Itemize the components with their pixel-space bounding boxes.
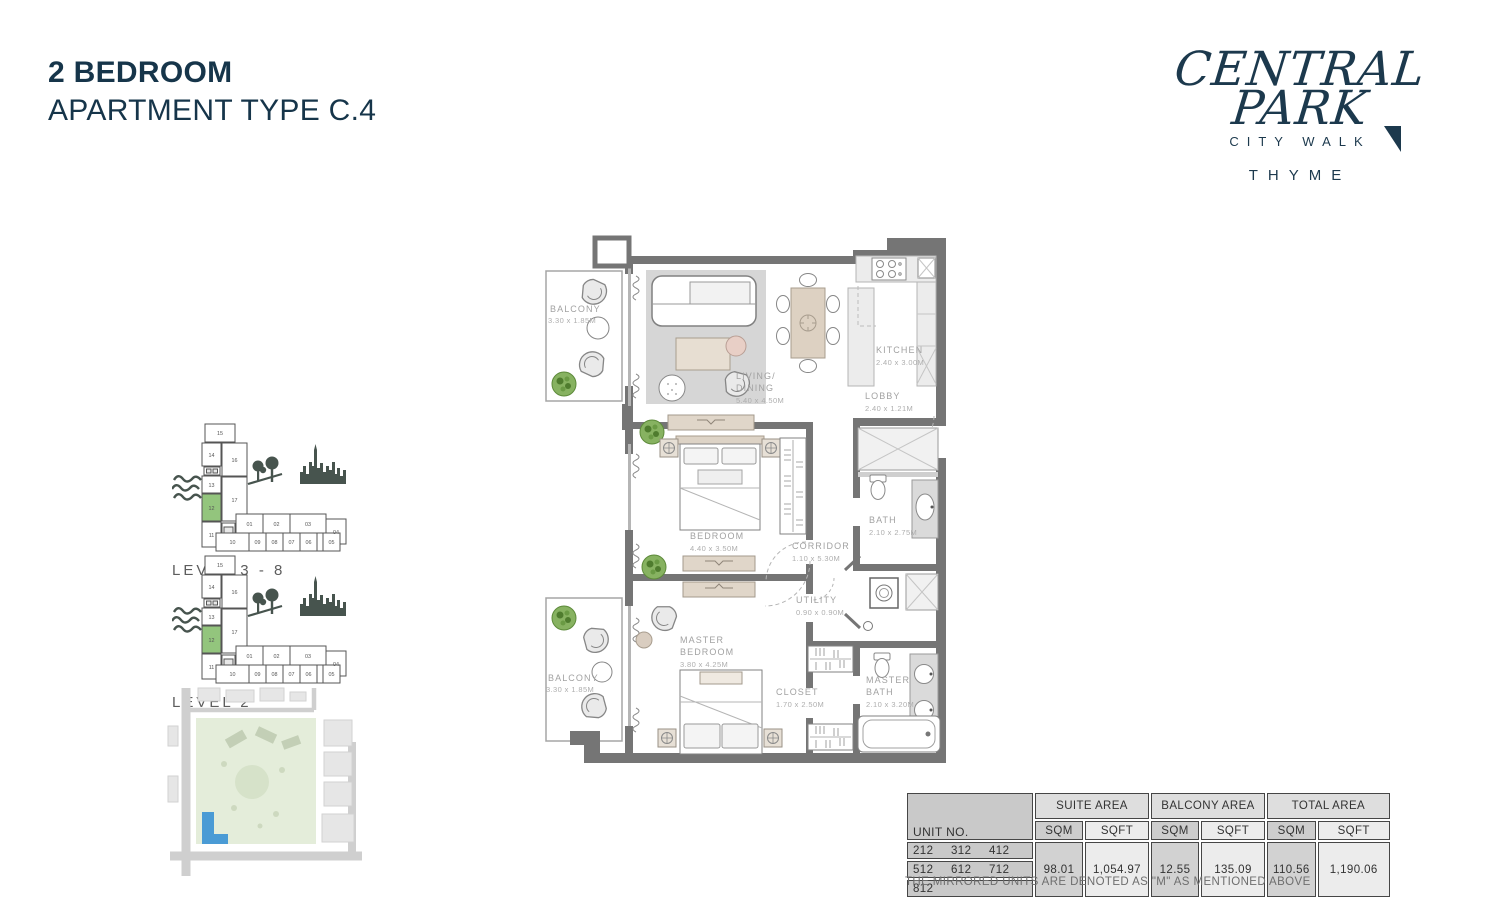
skyline-icon bbox=[300, 576, 346, 616]
svg-text:04: 04 bbox=[333, 530, 339, 536]
counter bbox=[917, 282, 936, 386]
floor-plan: BALCONY 3.30 x 1.85M LIVING/ DINING 5.40… bbox=[540, 226, 956, 789]
headboard bbox=[676, 436, 764, 444]
sqm-header: SQM bbox=[1035, 821, 1083, 840]
sqm-header: SQM bbox=[1151, 821, 1199, 840]
svg-text:05: 05 bbox=[329, 672, 335, 678]
balcony-area-header: BALCONY AREA bbox=[1151, 793, 1265, 819]
svg-text:CLOSET: CLOSET bbox=[776, 687, 819, 697]
pouf-icon bbox=[659, 375, 685, 401]
svg-text:03: 03 bbox=[305, 522, 311, 528]
svg-text:14: 14 bbox=[209, 453, 215, 459]
svg-text:MASTER: MASTER bbox=[680, 635, 724, 645]
waves-icon bbox=[172, 608, 201, 631]
brand-logo: CENTRAL PARK CITY WALK THYME bbox=[1166, 48, 1434, 184]
svg-text:BALCONY: BALCONY bbox=[548, 673, 599, 683]
trees-icon bbox=[248, 457, 282, 485]
page: 2 BEDROOM APARTMENT TYPE C.4 CENTRAL PAR… bbox=[0, 0, 1500, 900]
logo-citywalk: CITY WALK bbox=[1229, 134, 1370, 149]
svg-text:BALCONY: BALCONY bbox=[550, 304, 601, 314]
svg-text:3.30 x 1.85M: 3.30 x 1.85M bbox=[548, 316, 596, 325]
svg-text:DINING: DINING bbox=[736, 383, 774, 393]
site-map bbox=[164, 686, 370, 887]
sqft-header: SQFT bbox=[1085, 821, 1149, 840]
washer-icon bbox=[870, 578, 898, 608]
title-bedrooms: 2 BEDROOM bbox=[48, 54, 376, 92]
skyline-icon bbox=[300, 444, 346, 484]
svg-text:0.90 x 0.90M: 0.90 x 0.90M bbox=[796, 608, 844, 617]
nightstand-icon bbox=[660, 439, 678, 457]
curtain-icons bbox=[633, 276, 639, 732]
svg-text:KITCHEN: KITCHEN bbox=[876, 345, 923, 355]
svg-text:07: 07 bbox=[289, 672, 295, 678]
wall-light-icon bbox=[764, 729, 782, 747]
svg-text:LIVING/: LIVING/ bbox=[736, 371, 776, 381]
suite-sqm-value: 98.01 bbox=[1035, 842, 1083, 897]
svg-text:2.40 x 1.21M: 2.40 x 1.21M bbox=[865, 404, 913, 413]
svg-text:14: 14 bbox=[209, 585, 215, 591]
svg-text:01: 01 bbox=[247, 654, 253, 660]
dresser-icon bbox=[668, 415, 754, 430]
svg-text:06: 06 bbox=[306, 672, 312, 678]
svg-text:1.10 x 5.30M: 1.10 x 5.30M bbox=[792, 554, 840, 563]
svg-text:11: 11 bbox=[209, 665, 215, 671]
sqm-header: SQM bbox=[1267, 821, 1316, 840]
svg-text:12: 12 bbox=[209, 506, 215, 512]
svg-text:07: 07 bbox=[289, 540, 295, 546]
svg-text:15: 15 bbox=[217, 563, 223, 569]
balcony-top bbox=[546, 271, 622, 401]
total-sqft-value: 1,190.06 bbox=[1318, 842, 1390, 897]
armchair-icon bbox=[647, 600, 682, 636]
nightstand-icon bbox=[762, 439, 780, 457]
svg-text:02: 02 bbox=[274, 654, 280, 660]
svg-text:16: 16 bbox=[232, 458, 238, 464]
logo-triangle-icon bbox=[1384, 126, 1401, 152]
svg-text:09: 09 bbox=[255, 672, 261, 678]
suite-area-header: SUITE AREA bbox=[1035, 793, 1149, 819]
total-sqm-value: 110.56 bbox=[1267, 842, 1316, 897]
toilet-icon bbox=[870, 475, 886, 500]
svg-text:01: 01 bbox=[247, 522, 253, 528]
svg-text:10: 10 bbox=[230, 672, 236, 678]
total-area-header: TOTAL AREA bbox=[1267, 793, 1390, 819]
svg-text:2.40 x 3.00M: 2.40 x 3.00M bbox=[876, 358, 924, 367]
svg-text:2.10 x 2.75M: 2.10 x 2.75M bbox=[869, 528, 917, 537]
bedroom-furniture bbox=[640, 415, 806, 534]
coffee-table-icon bbox=[676, 338, 730, 370]
trees-icon bbox=[248, 589, 282, 617]
svg-text:LOBBY: LOBBY bbox=[865, 391, 901, 401]
svg-text:12: 12 bbox=[209, 638, 215, 644]
wall-light-icon bbox=[658, 729, 676, 747]
title-apartment-type: APARTMENT TYPE C.4 bbox=[48, 92, 376, 130]
suite-sqft-value: 1,054.97 bbox=[1085, 842, 1149, 897]
svg-text:BATH: BATH bbox=[866, 687, 894, 697]
svg-text:3.80 x 4.25M: 3.80 x 4.25M bbox=[680, 660, 728, 669]
svg-text:5.40 x 4.50M: 5.40 x 4.50M bbox=[736, 396, 784, 405]
svg-text:17: 17 bbox=[232, 498, 238, 504]
logo-thyme: THYME bbox=[1166, 167, 1434, 184]
svg-text:CORRIDOR: CORRIDOR bbox=[792, 541, 850, 551]
plant-icon bbox=[552, 606, 576, 630]
sqft-header: SQFT bbox=[1201, 821, 1265, 840]
svg-text:03: 03 bbox=[305, 654, 311, 660]
pillow bbox=[684, 724, 720, 748]
svg-text:09: 09 bbox=[255, 540, 261, 546]
toilet-icon bbox=[874, 653, 890, 678]
pillow bbox=[722, 724, 758, 748]
pillow bbox=[684, 448, 718, 464]
mirrored-units-note: THE MIRRORED UNITS ARE DENOTED AS "M" AS… bbox=[905, 876, 1311, 888]
pillow bbox=[722, 448, 756, 464]
svg-text:11: 11 bbox=[209, 533, 215, 539]
page-title: 2 BEDROOM APARTMENT TYPE C.4 bbox=[48, 54, 376, 131]
counter-peninsula bbox=[848, 288, 874, 386]
svg-text:10: 10 bbox=[230, 540, 236, 546]
sqft-header: SQFT bbox=[1318, 821, 1390, 840]
key-plan-graphic: 15 14 16 13 12 17 11 01 02 03 04 10 09 0… bbox=[172, 422, 350, 554]
svg-text:BEDROOM: BEDROOM bbox=[680, 647, 734, 657]
side-table-icon bbox=[726, 336, 746, 356]
svg-text:08: 08 bbox=[272, 540, 278, 546]
svg-text:13: 13 bbox=[209, 615, 215, 621]
table-row: 212312412 98.01 1,054.97 12.55 135.09 11… bbox=[907, 842, 1390, 859]
svg-text:MASTER: MASTER bbox=[866, 675, 910, 685]
svg-text:08: 08 bbox=[272, 672, 278, 678]
balcony-sqft-value: 135.09 bbox=[1201, 842, 1265, 897]
svg-text:1.70 x 2.50M: 1.70 x 2.50M bbox=[776, 700, 824, 709]
svg-text:16: 16 bbox=[232, 590, 238, 596]
balcony-bottom bbox=[546, 598, 622, 741]
svg-text:13: 13 bbox=[209, 483, 215, 489]
svg-text:02: 02 bbox=[274, 522, 280, 528]
svg-text:05: 05 bbox=[329, 540, 335, 546]
plant-icon bbox=[552, 372, 576, 396]
unit-no-header: UNIT NO. bbox=[907, 793, 1033, 840]
svg-text:2.10 x 3.20M: 2.10 x 3.20M bbox=[866, 700, 914, 709]
side-table-icon bbox=[636, 632, 652, 648]
waves-icon bbox=[172, 476, 201, 499]
plant-icon bbox=[642, 555, 666, 579]
key-plan-graphic: 15 14 16 13 12 17 11 01 02 03 04 10 09 0… bbox=[172, 554, 350, 686]
svg-text:17: 17 bbox=[232, 630, 238, 636]
closet-fixtures bbox=[808, 646, 853, 750]
logo-park: PARK bbox=[1164, 87, 1437, 130]
svg-text:BATH: BATH bbox=[869, 515, 897, 525]
svg-text:UTILITY: UTILITY bbox=[796, 595, 837, 605]
wardrobe-icon bbox=[683, 556, 755, 571]
dining-table-icon bbox=[791, 288, 825, 358]
shower-head-icon bbox=[864, 622, 873, 631]
svg-text:04: 04 bbox=[333, 662, 339, 668]
svg-text:15: 15 bbox=[217, 431, 223, 437]
svg-text:BEDROOM: BEDROOM bbox=[690, 531, 744, 541]
svg-text:3.30 x 1.85M: 3.30 x 1.85M bbox=[546, 685, 594, 694]
column bbox=[595, 238, 629, 266]
window-glass bbox=[628, 264, 631, 726]
balcony-sqm-value: 12.55 bbox=[1151, 842, 1199, 897]
svg-text:06: 06 bbox=[306, 540, 312, 546]
svg-text:4.40 x 3.50M: 4.40 x 3.50M bbox=[690, 544, 738, 553]
